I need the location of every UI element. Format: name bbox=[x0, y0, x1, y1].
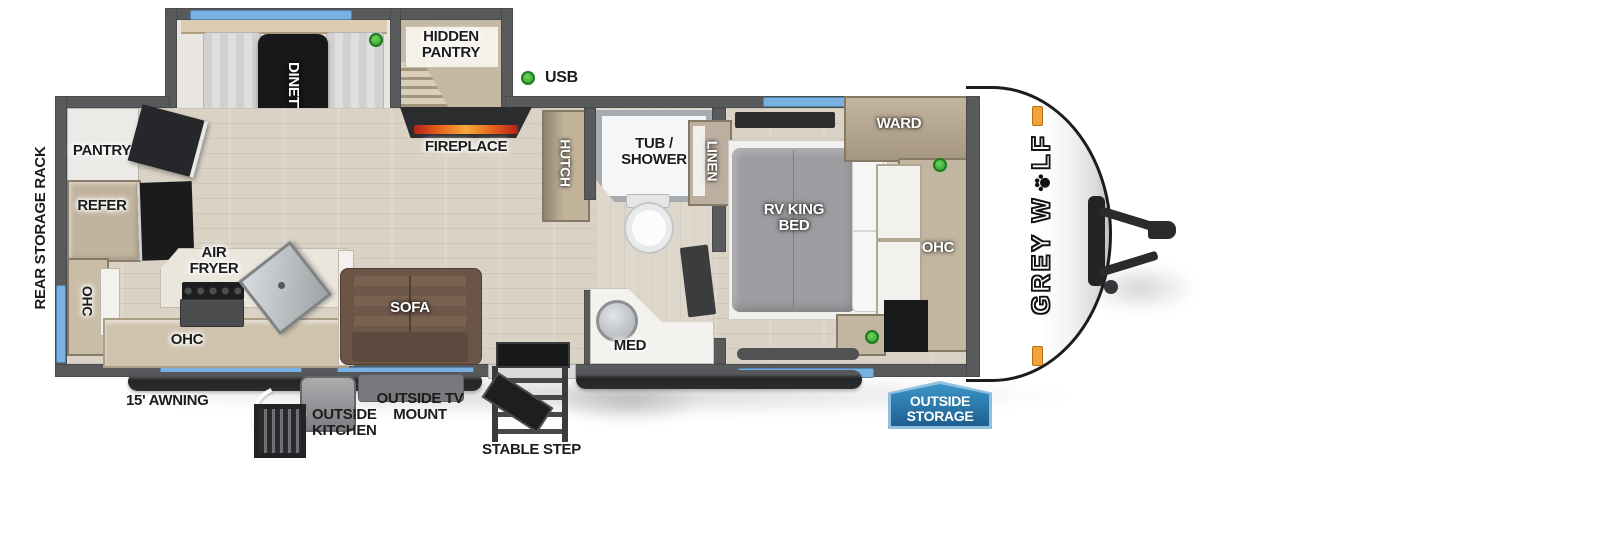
linen-label: LINEN bbox=[705, 141, 720, 182]
rv-king-bed-label: RV KING BED bbox=[757, 202, 831, 234]
bedroom-tv bbox=[735, 112, 835, 128]
monitor-dot-dinette bbox=[369, 33, 383, 47]
tub-shower-label: TUB / SHOWER bbox=[608, 136, 700, 168]
usb-dot bbox=[521, 71, 535, 85]
sofa-label: SOFA bbox=[388, 300, 432, 316]
ward-shelf-upper bbox=[876, 164, 922, 240]
ward-label: WARD bbox=[862, 116, 936, 132]
slideout-wall-right bbox=[501, 8, 513, 108]
stable-step-label: STABLE STEP bbox=[482, 442, 581, 458]
fireplace-flame bbox=[414, 125, 518, 134]
ohc-bedroom-label: OHC bbox=[918, 240, 958, 256]
clearance-light-top bbox=[1032, 106, 1043, 126]
bath-sink bbox=[596, 300, 638, 342]
bath-wall-right-lower bbox=[712, 338, 726, 364]
linen-interior bbox=[693, 126, 705, 196]
outside-tv-mount-label: OUTSIDE TV MOUNT bbox=[376, 391, 464, 423]
usb-label: USB bbox=[545, 70, 578, 87]
monitor-dot-nightstand bbox=[865, 330, 879, 344]
awning-label: 15' AWNING bbox=[126, 393, 209, 409]
ohc-kitchen-label: OHC bbox=[152, 332, 222, 348]
hitch-coupler bbox=[1148, 221, 1176, 239]
med-label: MED bbox=[604, 338, 656, 354]
rear-wall-window bbox=[56, 285, 66, 363]
monitor-dot-ward bbox=[933, 158, 947, 172]
range-body bbox=[180, 299, 244, 327]
fireplace-label: FIREPLACE bbox=[420, 139, 512, 155]
hidden-pantry-label: HIDDEN PANTRY bbox=[405, 29, 497, 61]
outside-storage-label: OUTSIDE STORAGE bbox=[900, 394, 980, 423]
slideout-window bbox=[190, 10, 352, 20]
bath-wall-left-upper bbox=[584, 108, 596, 200]
brand-text-1: GREY W bbox=[1028, 196, 1057, 315]
tv-mount-bar bbox=[576, 370, 862, 389]
air-fryer-label: AIR FRYER bbox=[186, 245, 242, 277]
entry-step-mat bbox=[496, 342, 570, 368]
brand-logo: GREY W LF bbox=[1028, 133, 1057, 315]
bedroom-storage-box bbox=[884, 300, 928, 352]
sofa-back bbox=[352, 332, 468, 362]
hutch-label: HUTCH bbox=[558, 139, 573, 187]
sink-drain bbox=[278, 282, 285, 289]
bedroom-rug bbox=[737, 348, 859, 360]
slideout-wall-left bbox=[165, 8, 177, 108]
slideout-wall-divider bbox=[390, 8, 401, 108]
ohc-rear-label: OHC bbox=[80, 286, 95, 316]
front-interior-wall bbox=[966, 96, 980, 377]
grill-icon bbox=[254, 404, 306, 458]
bedroom-top-window bbox=[763, 97, 853, 107]
toilet bbox=[624, 202, 674, 254]
pantry-label: PANTRY bbox=[70, 143, 134, 159]
hitch-jack bbox=[1104, 280, 1118, 294]
brand-text-2: LF bbox=[1028, 133, 1057, 170]
refer-cabinet bbox=[67, 180, 141, 262]
stove-grate bbox=[182, 282, 244, 300]
refer-label: REFER bbox=[70, 198, 134, 214]
paw-icon bbox=[1032, 173, 1052, 193]
floorplan-canvas: DINETTE HIDDEN PANTRY USB PANTRY REFER O… bbox=[0, 0, 1600, 551]
rear-storage-rack-label: REAR STORAGE RACK bbox=[33, 147, 49, 310]
clearance-light-bottom bbox=[1032, 346, 1043, 366]
